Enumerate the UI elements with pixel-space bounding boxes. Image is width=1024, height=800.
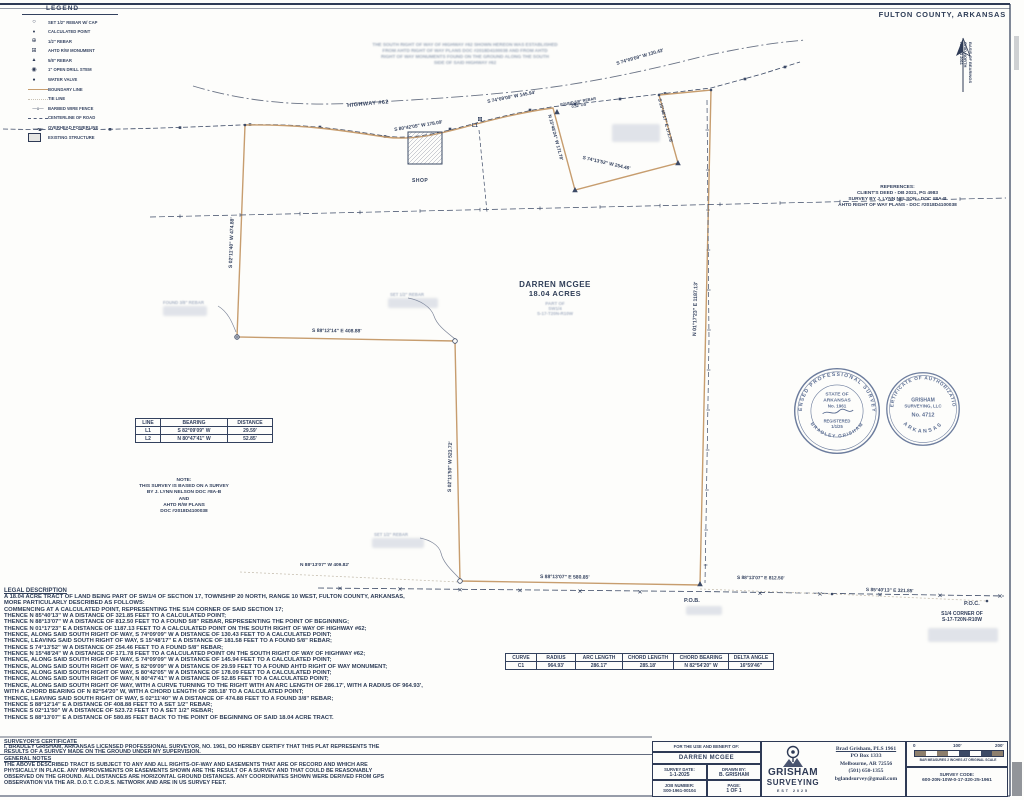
tract-owner: DARREN MCGEE xyxy=(490,280,620,289)
firm-name: GRISHAM SURVEYING EST 2025 xyxy=(764,768,822,793)
drill-stem-icon xyxy=(26,66,42,75)
seal-state-text: STATE OF xyxy=(825,392,848,398)
legend-item-label: EXISTING STRUCTURE xyxy=(48,135,95,140)
centerline-of-road-icon xyxy=(28,118,48,119)
legend-item: CALCULATED POINT xyxy=(22,28,152,38)
tract-area: 18.04 ACRES xyxy=(490,289,620,298)
job-number-cell: JOB NUMBER: S00-1961-00104 xyxy=(652,780,707,797)
survey-note-block: NOTE: THIS SURVEY IS BASED ON A SURVEY B… xyxy=(126,478,242,515)
faint-text-smudge xyxy=(388,298,438,308)
curve-table-header: CHORD BEARING xyxy=(674,654,729,662)
page-cell: PAGE: 1 OF 1 xyxy=(707,780,761,797)
county-title: FULTON COUNTY, ARKANSAS xyxy=(870,10,1006,19)
faint-text-smudge xyxy=(163,306,207,316)
scale-bar xyxy=(914,750,1004,757)
legend-item-label: 5/8" REBAR xyxy=(48,58,72,63)
faint-set-rebar-label: SET 1/2" REBAR xyxy=(390,292,424,297)
scale-tick-200: 200' xyxy=(995,743,1004,748)
faint-set-rebar-label: SET 1/2" REBAR xyxy=(374,532,408,537)
references-block: REFERENCES: CLIENT'S DEED - DB 2021, PG … xyxy=(795,185,1000,209)
legend-item-label: AHTD R/W MONUMENT xyxy=(48,48,95,53)
curve-table-header: CHORD LENGTH xyxy=(623,654,674,662)
legal-description: LEGAL DESCRIPTION A 18.04 ACRE TRACT OF … xyxy=(4,588,564,721)
tie-line-icon xyxy=(28,99,48,100)
legend-item-label: CENTERLINE OF ROAD xyxy=(48,115,95,120)
ahtd-rw-monument-icon xyxy=(26,47,42,56)
faint-text-smudge xyxy=(612,124,660,142)
scale-tick-100: 100' xyxy=(953,743,962,748)
tract-label: DARREN MCGEE 18.04 ACRES PART OFSW1/4S-1… xyxy=(490,280,620,316)
set-rebar-cap-icon xyxy=(26,18,42,27)
legend-item: BARBED WIRE FENCE xyxy=(22,104,152,114)
survey-code-cell: SURVEY CODE: 600-20N-10W-0-17-320-25-196… xyxy=(906,767,1008,797)
fence-stub xyxy=(479,130,487,212)
shop-label: SHOP xyxy=(412,178,428,184)
bearing-label: S 88°13'07" E 580.85' xyxy=(540,574,590,581)
row-establishment-note: THE SOUTH RIGHT OF WAY OF HIGHWAY #62 SH… xyxy=(330,42,600,66)
legal-line: THENCE S 88°13'07" E A DISTANCE OF 580.8… xyxy=(4,715,564,721)
line-table-row: L2N 80°47'41" W52.85' xyxy=(136,435,273,443)
legend-item: SET 1/2" REBAR W/ CAP xyxy=(22,18,152,28)
survey-date-cell: SURVEY DATE: 1-1-2025 xyxy=(652,764,707,780)
legend-item-label: CALCULATED POINT xyxy=(48,29,90,34)
quarter-corner-label: S1/4 CORNER OF S-17-T20N-R10W xyxy=(918,612,1006,624)
scale-tick-0: 0 xyxy=(913,743,916,748)
tract-subtitle: PART OFSW1/4S-17-T20N-R10W xyxy=(490,301,620,316)
legend: LEGEND SET 1/2" REBAR W/ CAP CALCULATED … xyxy=(22,5,152,143)
seal-number-text: No. 4712 xyxy=(912,412,935,418)
faint-text-smudge xyxy=(686,606,722,615)
seal-signature-squiggle xyxy=(823,409,854,413)
surveyor-seal: LICENSED PROFESSIONAL SURVEYOR BRADLEY G… xyxy=(792,366,882,456)
line-l1-label: L1 xyxy=(472,123,478,129)
north-arrow-label: BASIS OF BEARINGS GRID NORTH NAD83 2011 xyxy=(958,42,972,83)
seal-date-text: 1/1/25 xyxy=(831,424,843,429)
legend-item-label: 1/2" REBAR xyxy=(48,39,72,44)
calculated-point-icon xyxy=(26,28,42,38)
legend-item: TIE LINE xyxy=(22,95,152,105)
bearing-label: N 88°13'07" W 409.82' xyxy=(300,563,349,568)
authorization-seal: CERTIFICATE OF AUTHORIZATION ARKANSAS GR… xyxy=(884,370,962,448)
curve-table-header: DELTA ANGLE xyxy=(729,654,774,662)
legend-rule xyxy=(22,14,118,15)
client-name-cell: DARREN MCGEE xyxy=(652,752,761,764)
seal-number-text: No. 1961 xyxy=(828,403,847,408)
legend-item-label: 1" OPEN DRILL STEM xyxy=(48,67,92,72)
legend-item: 1" OPEN DRILL STEM xyxy=(22,66,152,76)
water-valve-icon xyxy=(26,76,42,85)
line-table-header: DISTANCE xyxy=(228,419,273,427)
general-notes: GENERAL NOTES THE ABOVE DESCRIBED TRACT … xyxy=(4,756,644,786)
line-table: LINE BEARING DISTANCE L1S 82°09'09" W29.… xyxy=(135,418,273,443)
svg-text:ARKANSAS: ARKANSAS xyxy=(902,421,944,435)
bearing-label: S 02°11'50" W 523.72' xyxy=(447,441,454,492)
seal-firm2-text: SURVEYING, LLC xyxy=(904,404,942,409)
faint-text-smudge xyxy=(372,538,424,548)
half-inch-rebar-icon xyxy=(26,37,42,46)
shop-building xyxy=(408,132,442,164)
legend-item-label: BOUNDARY LINE xyxy=(48,87,83,92)
reference-line: AHTD RIGHT OF WAY PLANS - DOC #2018D4100… xyxy=(795,203,1000,209)
line-table-row: L1S 82°09'09" W29.59' xyxy=(136,427,273,435)
poc-label: P.O.C. xyxy=(964,601,980,607)
legend-item-label: WATER VALVE xyxy=(48,77,77,82)
curve-table-header: ARC LENGTH xyxy=(576,654,623,662)
general-note-line: OBSERVATION VIA THE AR. D.O.T. C.O.R.S. … xyxy=(4,780,644,786)
surveyor-pin-icon xyxy=(780,744,806,768)
legend-item: 1/2" REBAR xyxy=(22,37,152,47)
scale-bar-cell: 0 100' 200' BAR MEASURES 2 INCHES AT ORI… xyxy=(906,741,1008,767)
legend-item-label: OVERHEAD POWERLINE xyxy=(48,125,98,130)
legend-item: EXISTING STRUCTURE xyxy=(22,133,152,143)
legend-item: CENTERLINE OF ROAD xyxy=(22,114,152,124)
scale-note: BAR MEASURES 2 INCHES AT ORIGINAL SCALE xyxy=(911,758,1005,762)
pob-label: P.O.B. xyxy=(684,598,700,604)
legend-title: LEGEND xyxy=(46,5,152,12)
legend-item-label: BARBED WIRE FENCE xyxy=(48,106,93,111)
firm-contact: Brad Grisham, PLS 1961 PO Box 1333 Melbo… xyxy=(826,746,906,783)
existing-structure-icon xyxy=(28,133,41,142)
line-table-header: LINE xyxy=(136,419,161,427)
faint-found-rebar-label: FOUND 3/8" REBAR xyxy=(163,300,204,305)
legend-item-label: TIE LINE xyxy=(48,96,65,101)
faint-text-smudge xyxy=(928,628,998,642)
seal-registered-text: REGISTERED xyxy=(824,419,851,424)
legend-item: BOUNDARY LINE xyxy=(22,85,152,95)
drawn-by-cell: DRAWN BY: B. GRISHAM xyxy=(707,764,761,780)
firm-cell: GRISHAM SURVEYING EST 2025 Brad Grisham,… xyxy=(761,741,906,797)
legend-item: WATER VALVE xyxy=(22,76,152,86)
tract-boundary xyxy=(237,90,711,585)
line-table-header: BEARING xyxy=(161,419,228,427)
legend-item: OVERHEAD POWERLINE xyxy=(22,124,152,134)
boundary-line-icon xyxy=(28,89,48,90)
seal-state-text: ARKANSAS xyxy=(902,421,944,435)
survey-plat-page: LEGEND SET 1/2" REBAR W/ CAP CALCULATED … xyxy=(0,0,1024,800)
legend-item: AHTD R/W MONUMENT xyxy=(22,47,152,57)
legend-item: 5/8" REBAR xyxy=(22,56,152,66)
seal-firm-text: GRISHAM xyxy=(911,398,935,404)
bearing-label: S 88°12'14" E 408.88' xyxy=(312,328,362,334)
five-eighths-rebar-icon xyxy=(26,56,42,65)
benefit-label-cell: FOR THE USE AND BENEFIT OF: xyxy=(652,741,761,752)
bearing-label: S 88°13'07" E 812.50' xyxy=(737,576,785,581)
surveyors-certificate: SURVEYOR'S CERTIFICATE I, BRADLEY GRISHA… xyxy=(4,739,644,757)
legend-item-label: SET 1/2" REBAR W/ CAP xyxy=(48,20,97,25)
